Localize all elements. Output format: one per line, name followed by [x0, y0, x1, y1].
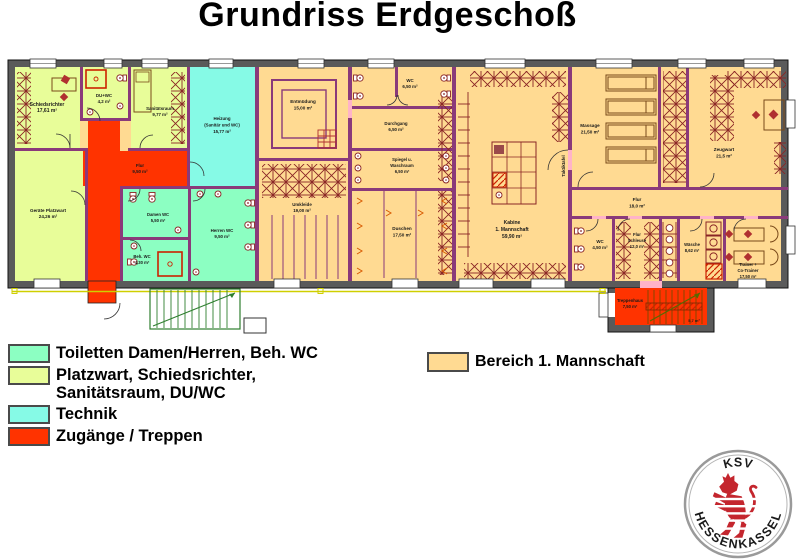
svg-text:5,7 m²: 5,7 m²	[688, 318, 700, 323]
legend-label-mannschaft: Bereich 1. Mannschaft	[475, 353, 645, 371]
svg-text:6,50 m²: 6,50 m²	[402, 84, 418, 89]
label-herren-wc: Herren WC	[211, 228, 235, 233]
svg-text:9,77 m²: 9,77 m²	[152, 112, 168, 117]
svg-text:12,0 m²: 12,0 m²	[630, 244, 645, 249]
legend-swatch-toiletten	[8, 344, 50, 363]
svg-text:8,62 m²: 8,62 m²	[685, 248, 700, 253]
svg-text:21,50 m²: 21,50 m²	[581, 130, 600, 135]
label-zeugwart: Zeugwart	[714, 147, 735, 152]
label-treppenhaus: Treppenhaus	[617, 298, 644, 303]
legend-left: Toiletten Damen/Herren, Beh. WC Platzwar…	[8, 344, 348, 449]
label-spiegel: Spiegel u.	[392, 157, 412, 162]
exterior-stairs	[150, 289, 240, 329]
label-duschen: Duschen	[392, 226, 412, 231]
svg-text:17,61 m²: 17,61 m²	[37, 108, 57, 114]
svg-text:7,50 m²: 7,50 m²	[623, 304, 638, 309]
basin-column	[662, 222, 677, 278]
label-trainer: Trainer +	[739, 262, 757, 267]
label-entmuedung: Entmüdung	[290, 99, 316, 104]
label-schleuse: Flur	[633, 232, 641, 237]
legend-row-platzwart: Platzwart, Schiedsrichter, Sanitätsraum,…	[8, 366, 348, 402]
label-kabine: Kabine	[504, 220, 521, 226]
floorplan-svg: Schiedsrichter 17,61 m² DU+WC 4,2 m² San…	[0, 0, 800, 559]
label-damen-wc: Damen WC	[147, 212, 169, 217]
label-wc-mitte: WC	[406, 78, 414, 83]
legend-label-toiletten: Toiletten Damen/Herren, Beh. WC	[56, 344, 318, 362]
label-durchgang: Durchgang	[384, 121, 407, 126]
room-flur-links-stem	[88, 121, 120, 281]
legend-mannschaft: Bereich 1. Mannschaft	[427, 352, 645, 372]
svg-text:17,50 m²: 17,50 m²	[740, 274, 757, 279]
ksv-logo: KSVHESSENKASSEL	[685, 451, 791, 557]
kitchen-kabine	[492, 142, 536, 204]
svg-text:Co-Trainer: Co-Trainer	[738, 268, 759, 273]
label-taktiktafel: Taktiktafel	[561, 155, 566, 176]
svg-text:4,2 m²: 4,2 m²	[98, 99, 111, 104]
label-wc-rechts: WC	[596, 239, 604, 244]
legend-swatch-technik	[8, 405, 50, 424]
legend-row-zugaenge: Zugänge / Treppen	[8, 427, 348, 446]
svg-text:9,50 m²: 9,50 m²	[132, 169, 148, 174]
label-du-wc: DU+WC	[96, 93, 113, 98]
legend-swatch-zugaenge	[8, 427, 50, 446]
svg-text:4,50 m²: 4,50 m²	[592, 245, 608, 250]
legend-swatch-platzwart	[8, 366, 50, 385]
label-flur-links: Flur	[136, 163, 145, 168]
svg-text:4,30 m²: 4,30 m²	[135, 260, 150, 265]
svg-text:6,50 m²: 6,50 m²	[388, 127, 404, 132]
legend-swatch-mannschaft	[427, 352, 469, 372]
svg-text:1. Mannschaft: 1. Mannschaft	[495, 227, 529, 233]
svg-text:15,00 m²: 15,00 m²	[294, 106, 313, 111]
label-flur-rechts: Flur	[633, 197, 642, 202]
legend-row-technik: Technik	[8, 405, 348, 424]
svg-text:6,50 m²: 6,50 m²	[395, 169, 410, 174]
label-heizung: Heizung	[213, 116, 230, 121]
label-beh-wc: Beh. WC	[133, 254, 150, 259]
label-sanitaetsraum: Sanitätsraum	[146, 106, 174, 111]
svg-text:15,77 m²: 15,77 m²	[213, 129, 231, 134]
legend-label-technik: Technik	[56, 405, 117, 423]
svg-text:5,50 m²: 5,50 m²	[151, 218, 166, 223]
label-umkleide: Umkleide	[292, 202, 312, 207]
svg-text:(Sanitär und WC): (Sanitär und WC)	[204, 123, 240, 128]
svg-text:19,00 m²: 19,00 m²	[293, 208, 311, 213]
entry-mat	[244, 318, 266, 333]
legend-label-zugaenge: Zugänge / Treppen	[56, 427, 203, 445]
legend-row-toiletten: Toiletten Damen/Herren, Beh. WC	[8, 344, 348, 363]
svg-text:18,0 m²: 18,0 m²	[629, 204, 645, 209]
svg-text:59,90 m²: 59,90 m²	[502, 234, 522, 240]
svg-text:24,26 m²: 24,26 m²	[39, 214, 58, 219]
svg-text:21,5 m²: 21,5 m²	[716, 154, 732, 159]
label-waesche: Wäsche	[684, 242, 700, 247]
svg-text:9,50 m²: 9,50 m²	[214, 234, 230, 239]
legend-label-platzwart-1: Platzwart, Schiedsrichter,	[56, 366, 256, 384]
floorplan-page: Grundriss Erdgeschoß	[0, 0, 800, 559]
legend-label-platzwart-2: Sanitätsraum, DU/WC	[56, 384, 226, 402]
label-massage: Massage	[580, 123, 600, 128]
treppenhaus-annex	[599, 281, 714, 332]
svg-text:Schleuse: Schleuse	[628, 238, 647, 243]
svg-text:Waschraum: Waschraum	[390, 163, 414, 168]
svg-text:17,50 m²: 17,50 m²	[393, 233, 412, 238]
logo-letter: S	[734, 455, 742, 469]
label-platzwart: Geräte Platzwart	[30, 208, 66, 213]
